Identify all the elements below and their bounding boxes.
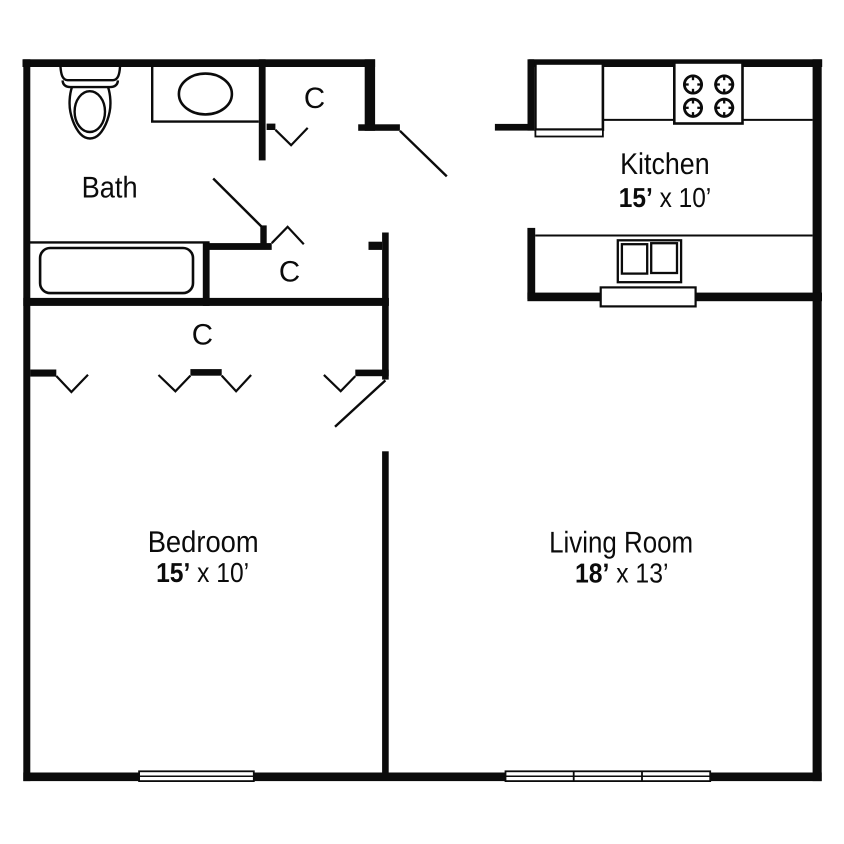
svg-text:Bedroom: Bedroom	[148, 526, 259, 559]
svg-text:C: C	[304, 82, 325, 115]
svg-text:Bath: Bath	[82, 172, 138, 205]
svg-text:C: C	[279, 255, 300, 288]
svg-text:15’ x 10’: 15’ x 10’	[619, 182, 712, 213]
svg-text:Living Room: Living Room	[549, 527, 693, 560]
svg-text:C: C	[192, 318, 213, 351]
svg-text:18’ x 13’: 18’ x 13’	[575, 558, 669, 589]
svg-text:Kitchen: Kitchen	[620, 148, 710, 181]
svg-text:15’ x 10’: 15’ x 10’	[156, 557, 249, 588]
